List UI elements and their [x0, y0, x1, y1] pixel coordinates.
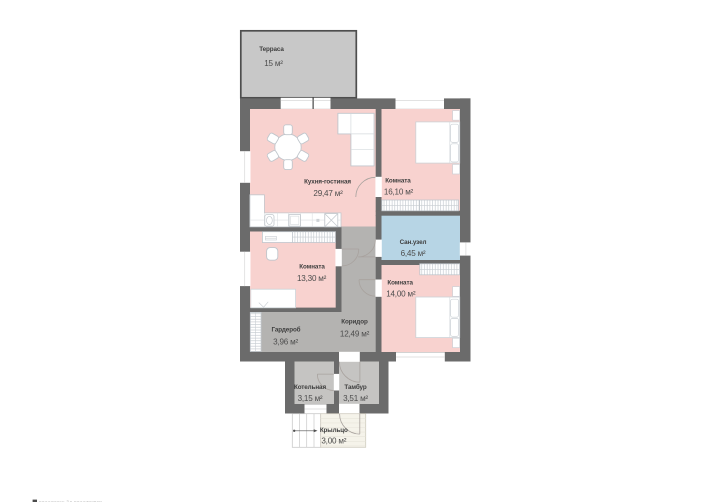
- svg-text:6,45 м²: 6,45 м²: [401, 249, 426, 258]
- svg-text:15 м²: 15 м²: [264, 59, 283, 68]
- svg-text:Тамбур: Тамбур: [344, 383, 366, 391]
- svg-text:3,51 м²: 3,51 м²: [343, 394, 368, 403]
- svg-text:Терраса: Терраса: [259, 46, 284, 53]
- svg-text:Сан.узел: Сан.узел: [400, 239, 427, 246]
- svg-text:Комната: Комната: [385, 177, 411, 184]
- svg-text:14,00 м²: 14,00 м²: [386, 290, 416, 299]
- svg-text:29,47 м²: 29,47 м²: [313, 189, 343, 198]
- svg-text:Комната: Комната: [299, 264, 325, 271]
- svg-text:Гардероб: Гардероб: [272, 326, 301, 334]
- svg-text:16,10 м²: 16,10 м²: [384, 188, 414, 197]
- svg-text:Комната: Комната: [387, 279, 413, 286]
- svg-text:3,00 м²: 3,00 м²: [321, 437, 346, 446]
- svg-text:12,49 м²: 12,49 м²: [340, 329, 370, 338]
- svg-text:Коридор: Коридор: [341, 319, 368, 326]
- svg-text:Котельная: Котельная: [294, 384, 326, 391]
- svg-text:3,15 м²: 3,15 м²: [298, 394, 323, 403]
- svg-text:3,96 м²: 3,96 м²: [273, 337, 298, 346]
- svg-text:Крыльцо: Крыльцо: [320, 427, 348, 434]
- svg-text:Кухня-гостиная: Кухня-гостиная: [304, 179, 351, 186]
- svg-text:13,30 м²: 13,30 м²: [297, 274, 327, 283]
